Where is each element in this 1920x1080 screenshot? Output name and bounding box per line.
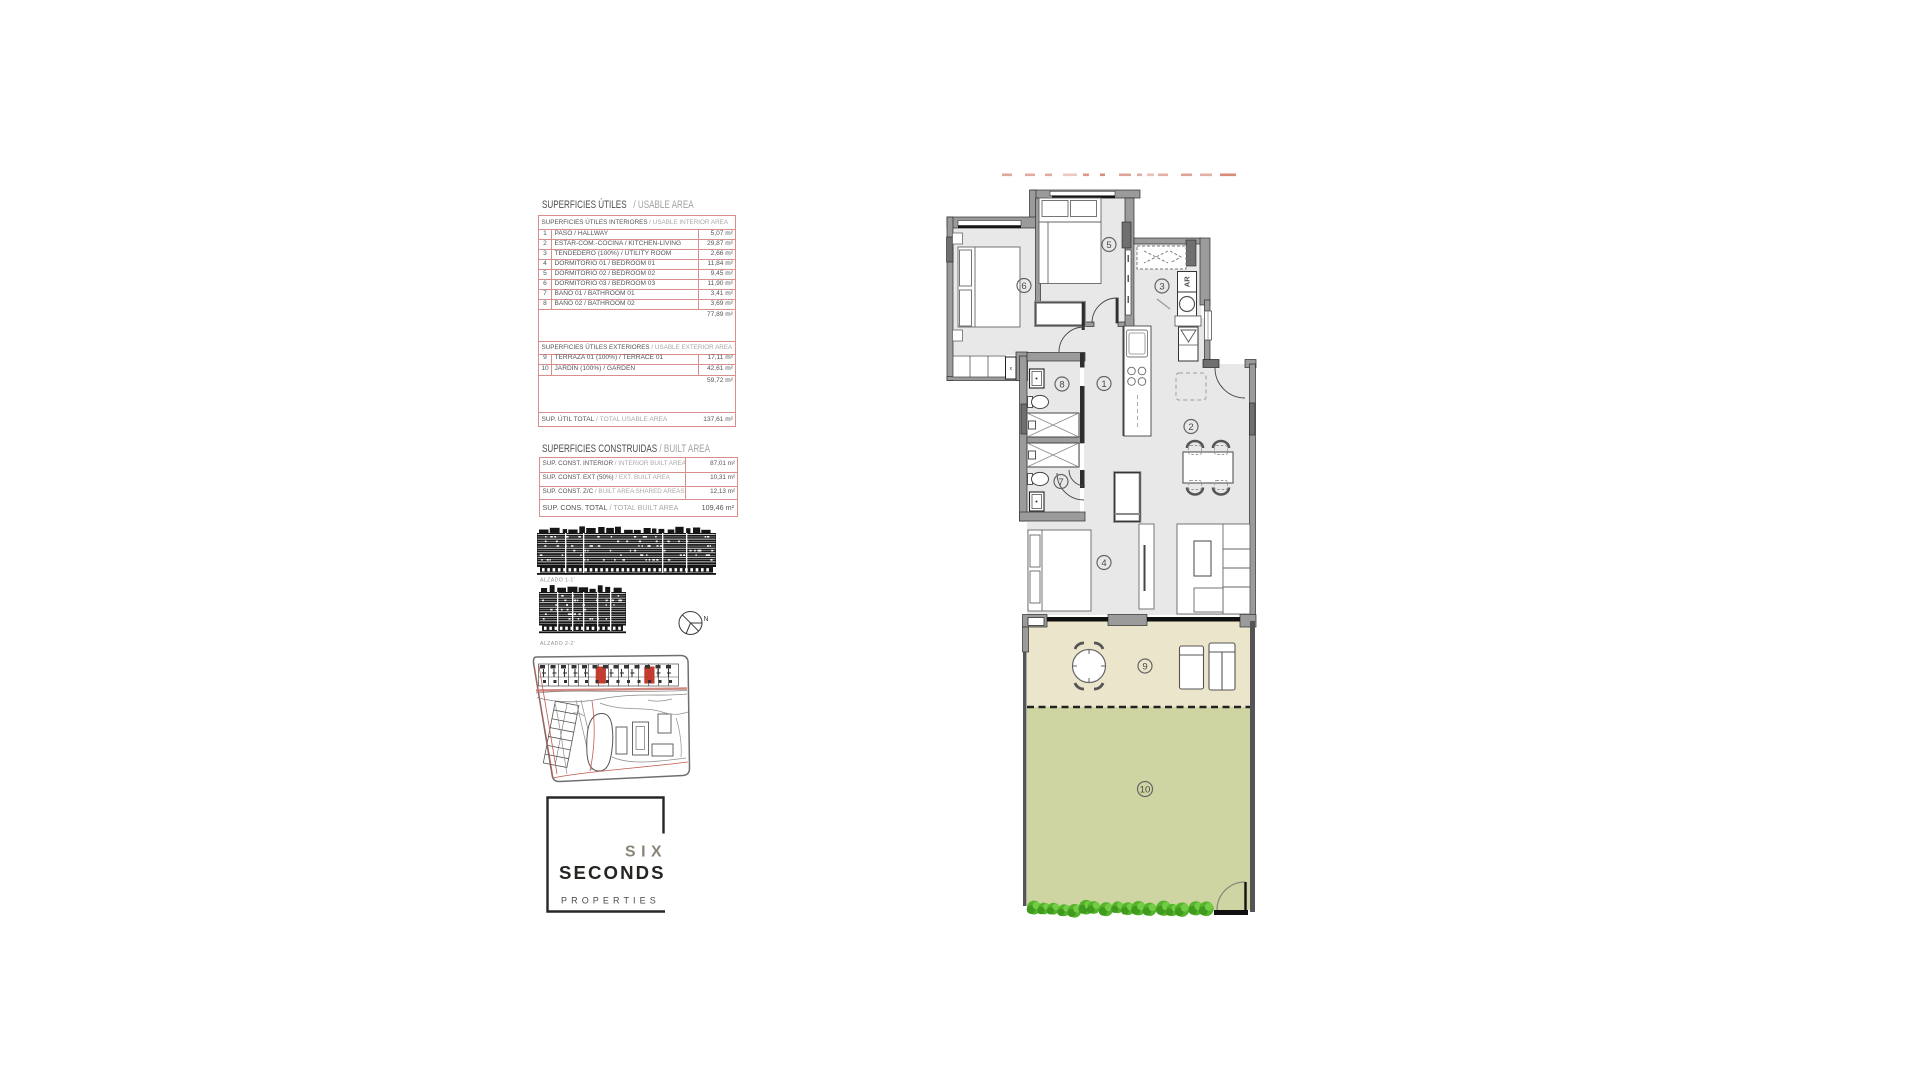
svg-text:5: 5 — [1106, 240, 1111, 251]
svg-text:1: 1 — [1101, 379, 1106, 390]
svg-text:4: 4 — [1101, 558, 1106, 569]
svg-text:PROPERTIES: PROPERTIES — [561, 896, 660, 906]
svg-text:AR: AR — [1183, 276, 1192, 287]
svg-text:2: 2 — [1188, 422, 1193, 433]
svg-text:10: 10 — [1140, 785, 1151, 796]
svg-text:N: N — [704, 616, 709, 623]
svg-text:SECONDS: SECONDS — [559, 862, 666, 883]
svg-text:ALZADO 1-1': ALZADO 1-1' — [540, 578, 575, 584]
svg-text:6: 6 — [1021, 281, 1026, 292]
svg-text:9: 9 — [1142, 662, 1147, 673]
svg-text:SIX: SIX — [625, 844, 667, 861]
svg-text:ALZADO 2-2': ALZADO 2-2' — [540, 641, 575, 647]
svg-text:8: 8 — [1059, 380, 1064, 391]
svg-text:3: 3 — [1159, 282, 1164, 293]
svg-text:7: 7 — [1058, 477, 1063, 488]
